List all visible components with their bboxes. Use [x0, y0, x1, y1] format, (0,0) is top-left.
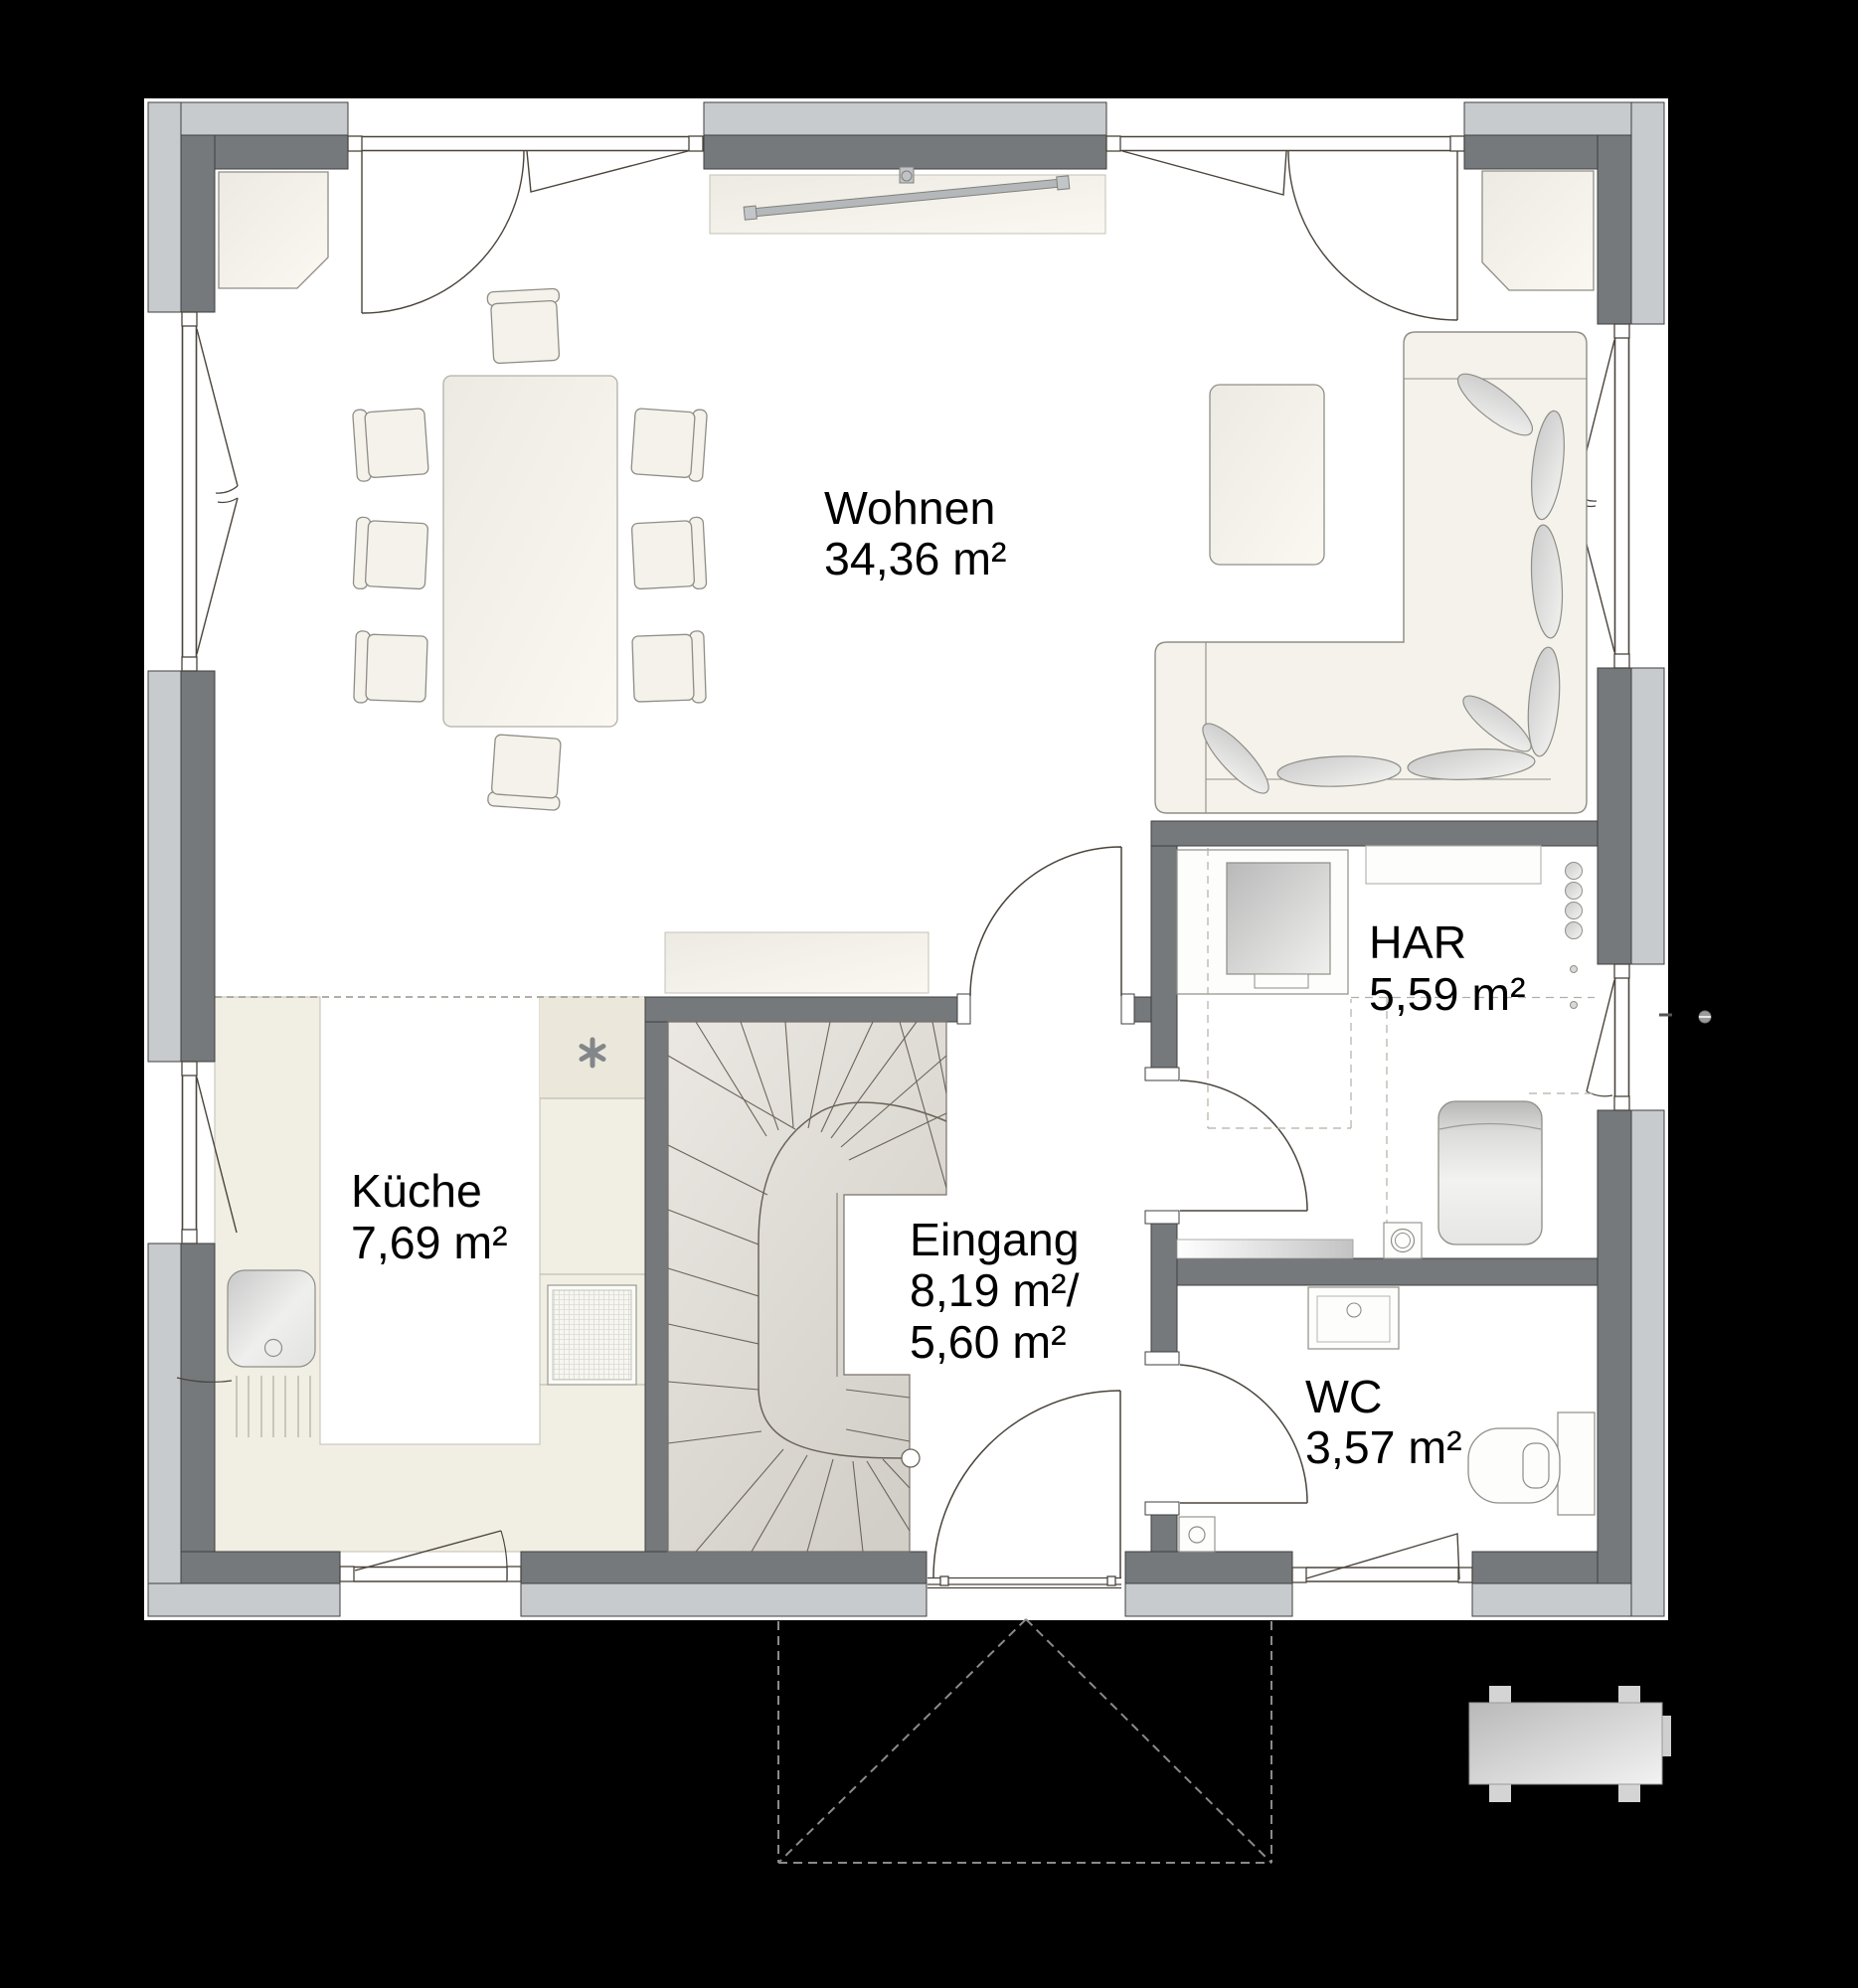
- svg-text:7,69 m²: 7,69 m²: [351, 1217, 508, 1268]
- svg-text:5,59 m²: 5,59 m²: [1369, 968, 1526, 1020]
- svg-text:Küche: Küche: [351, 1165, 482, 1217]
- svg-text:5,60 m²: 5,60 m²: [910, 1316, 1067, 1368]
- svg-text:WC: WC: [1305, 1371, 1382, 1422]
- svg-text:HAR: HAR: [1369, 916, 1466, 968]
- svg-text:34,36 m²: 34,36 m²: [824, 533, 1007, 584]
- svg-text:Eingang: Eingang: [910, 1214, 1080, 1265]
- svg-text:3,57 m²: 3,57 m²: [1305, 1421, 1462, 1473]
- svg-text:8,19 m²/: 8,19 m²/: [910, 1264, 1080, 1316]
- svg-text:Wohnen: Wohnen: [824, 482, 995, 534]
